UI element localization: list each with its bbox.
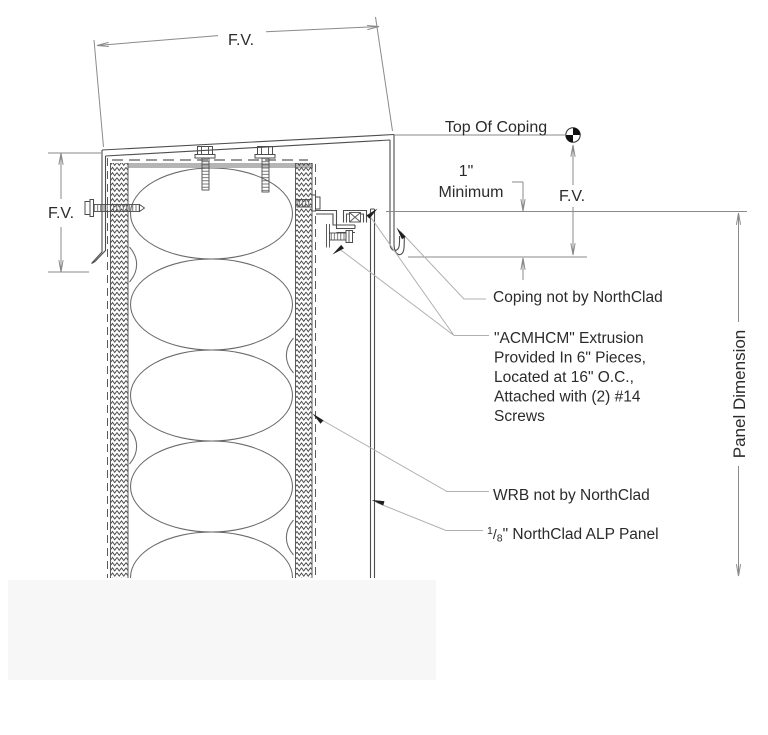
alp-panel — [371, 209, 375, 578]
leader-arrowheads — [313, 209, 406, 506]
dim-label-minimum: Minimum — [439, 184, 504, 201]
dim-label-top-fv: F.V. — [228, 32, 254, 49]
leader-coping-note — [401, 232, 487, 300]
leader-arrowhead — [333, 245, 344, 255]
note-coping: Coping not by NorthClad — [493, 289, 663, 306]
detail-drawing-canvas: F.V. F.V. Top Of Coping 1" Minimum F.V. … — [0, 0, 768, 735]
leader-arrowhead — [372, 500, 385, 505]
coping-cap — [92, 135, 405, 264]
note-extrusion-line3: Located at 16" O.C., — [494, 369, 634, 386]
watermark-block — [8, 580, 436, 680]
datum-target-symbol — [566, 128, 580, 142]
dim-label-left-fv: F.V. — [48, 205, 74, 222]
label-panel-dimension: Panel Dimension — [730, 330, 749, 459]
leader-wrb-note — [318, 418, 490, 492]
note-extrusion-line2: Provided In 6" Pieces, — [494, 350, 646, 367]
dim-label-right-fv: F.V. — [559, 188, 585, 205]
note-panel: 1/8" NorthClad ALP Panel — [487, 525, 659, 545]
leader-extrusion-note — [340, 216, 490, 336]
leader-panel-note — [377, 503, 484, 531]
leader-arrowhead — [313, 414, 324, 424]
note-wrb: WRB not by NorthClad — [493, 487, 650, 504]
note-extrusion-line4: Attached with (2) #14 — [494, 389, 641, 406]
leader-arrowhead — [397, 228, 406, 240]
leader-arrowhead — [366, 209, 377, 219]
coping-detail-drawing: F.V. F.V. Top Of Coping 1" Minimum F.V. … — [0, 0, 768, 735]
acmhcm-extrusion — [316, 211, 367, 248]
sheathing-left — [111, 163, 129, 578]
sheathing-right — [296, 163, 313, 578]
label-top-of-coping: Top Of Coping — [445, 119, 547, 136]
batt-insulation — [130, 168, 294, 623]
note-extrusion-line5: Screws — [494, 408, 545, 425]
coping-face-inner — [390, 140, 400, 251]
note-extrusion-line1: "ACMHCM" Extrusion — [494, 330, 644, 347]
wall-assembly — [108, 158, 316, 623]
panel-note-rest: " NorthClad ALP Panel — [503, 526, 659, 543]
extrusion-bracket — [327, 224, 330, 248]
leader-lines — [318, 216, 490, 531]
anchor-bolt-right — [255, 147, 275, 193]
top-plate — [128, 163, 313, 168]
dim-label-one-inch: 1" — [459, 163, 474, 180]
